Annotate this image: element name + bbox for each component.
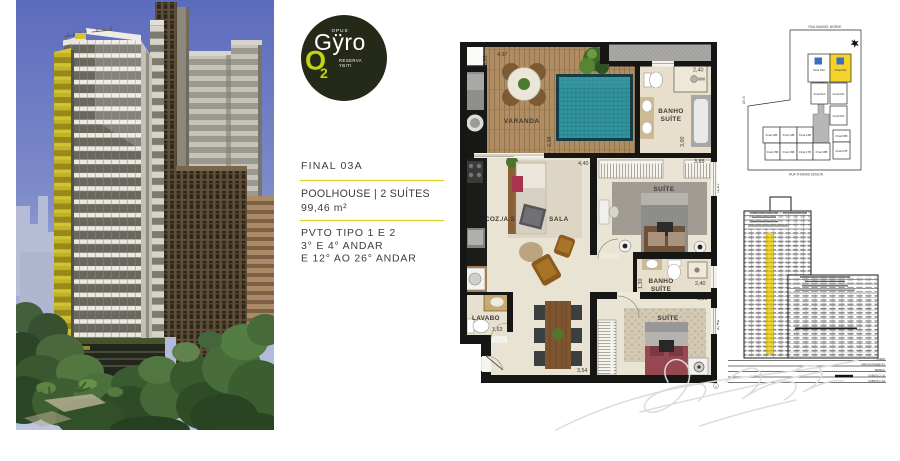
svg-text:Final 15B: Final 15B (767, 150, 779, 154)
svg-text:99,46 m²: 99,46 m² (301, 202, 347, 214)
svg-text:3,00: 3,00 (680, 137, 686, 148)
svg-text:BANHO: BANHO (649, 278, 674, 285)
svg-text:SUÍTE: SUÍTE (651, 284, 672, 293)
svg-text:VARANDA: VARANDA (504, 118, 540, 125)
svg-text:SUÍTE: SUÍTE (661, 114, 682, 123)
svg-text:Final 01A: Final 01A (814, 92, 826, 96)
svg-text:Final 17B: Final 17B (799, 150, 811, 154)
svg-text:R: R (715, 385, 718, 389)
svg-text:1,30: 1,30 (638, 279, 644, 290)
svg-text:COZ./A.S: COZ./A.S (485, 216, 516, 223)
svg-text:RUA SAMUEL MORSE: RUA SAMUEL MORSE (808, 25, 841, 29)
svg-text:2,40: 2,40 (693, 68, 704, 74)
svg-text:2,38: 2,38 (547, 137, 553, 148)
svg-text:Final 16B: Final 16B (783, 150, 795, 154)
svg-text:SUBSOLO 1/2: SUBSOLO 1/2 (868, 373, 885, 377)
svg-text:PVTO TIPO 1 E 2: PVTO TIPO 1 E 2 (301, 227, 396, 239)
svg-text:TERREO: TERREO (874, 368, 885, 372)
svg-text:AV. N: AV. N (742, 96, 746, 104)
svg-text:2,40: 2,40 (695, 281, 706, 287)
svg-text:SUÍTE: SUÍTE (657, 313, 679, 322)
svg-text:3° E 4° ANDAR: 3° E 4° ANDAR (301, 240, 383, 252)
svg-text:RUA THOMAS EDISON: RUA THOMAS EDISON (789, 173, 824, 177)
svg-text:3,55: 3,55 (483, 56, 489, 67)
svg-text:3,85: 3,85 (694, 159, 705, 165)
svg-text:Final 12B: Final 12B (766, 133, 778, 137)
svg-text:Final 03A: Final 03A (835, 68, 847, 72)
svg-text:Final 07B: Final 07B (836, 149, 848, 153)
svg-text:3,54: 3,54 (577, 368, 588, 374)
svg-text:LAVABO: LAVABO (472, 315, 500, 322)
svg-text:BANHO: BANHO (658, 108, 683, 115)
svg-text:Final 05A: Final 05A (833, 114, 845, 118)
svg-text:FINAL 03A: FINAL 03A (301, 160, 363, 172)
svg-text:YBITI: YBITI (339, 63, 352, 68)
svg-text:Final 04A: Final 04A (833, 92, 845, 96)
svg-text:SUBSOLO 3/4: SUBSOLO 3/4 (868, 379, 885, 383)
svg-text:POOLHOUSE | 2 SUÍTES: POOLHOUSE | 2 SUÍTES (301, 187, 430, 200)
svg-text:SUÍTE: SUÍTE (653, 184, 675, 193)
svg-text:E 12° AO 26° ANDAR: E 12° AO 26° ANDAR (301, 253, 417, 265)
svg-text:Final 02A: Final 02A (813, 68, 825, 72)
svg-text:4,97: 4,97 (497, 52, 508, 58)
svg-text:Final 14B: Final 14B (799, 133, 811, 137)
svg-text:Final 13B: Final 13B (783, 133, 795, 137)
svg-text:LAZER: LAZER (877, 357, 885, 361)
svg-text:APROVEITAMENTO: APROVEITAMENTO (861, 362, 885, 366)
svg-text:Final 18B: Final 18B (816, 150, 828, 154)
svg-text:4,40: 4,40 (578, 161, 589, 167)
svg-text:Final 06B: Final 06B (836, 134, 848, 138)
svg-text:SALA: SALA (549, 216, 569, 223)
svg-text:2: 2 (320, 65, 328, 81)
